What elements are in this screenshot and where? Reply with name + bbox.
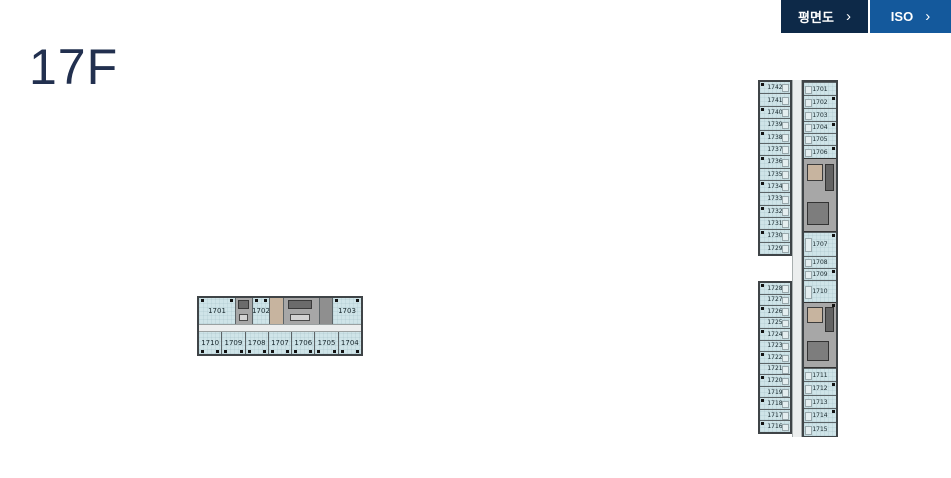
unit-1712[interactable]: 1712 bbox=[804, 381, 836, 395]
unit-label: 1708 bbox=[804, 257, 836, 268]
unit-label: 1739 bbox=[760, 119, 790, 130]
core-area bbox=[804, 302, 836, 368]
unit-label: 1728 bbox=[760, 283, 790, 294]
core-detail bbox=[288, 300, 313, 309]
unit-1718[interactable]: 1718 bbox=[760, 397, 790, 409]
unit-1735[interactable]: 1735 bbox=[760, 168, 790, 180]
unit-1740[interactable]: 1740 bbox=[760, 106, 790, 118]
core-detail bbox=[807, 307, 824, 322]
unit-label: 1730 bbox=[760, 230, 790, 241]
unit-1702[interactable]: 1702 bbox=[804, 95, 836, 108]
chevron-right-icon: › bbox=[925, 9, 930, 24]
core-detail bbox=[825, 164, 834, 191]
core-detail bbox=[807, 164, 824, 181]
unit-1714[interactable]: 1714 bbox=[804, 408, 836, 422]
unit-1724[interactable]: 1724 bbox=[760, 328, 790, 340]
unit-label: 1711 bbox=[804, 369, 836, 381]
core-detail bbox=[807, 202, 829, 225]
unit-label: 1724 bbox=[760, 329, 790, 340]
unit-1707[interactable]: 1707 bbox=[804, 232, 836, 256]
unit-label: 1723 bbox=[760, 341, 790, 352]
unit-1731[interactable]: 1731 bbox=[760, 217, 790, 229]
unit-1733[interactable]: 1733 bbox=[760, 192, 790, 204]
unit-label: 1710 bbox=[199, 332, 221, 354]
plan-top-row: 170117021703 bbox=[199, 298, 361, 324]
core-detail bbox=[239, 314, 248, 322]
plan-left-column: 1742174117401739173817371736173517341733… bbox=[758, 80, 792, 437]
unit-1726[interactable]: 1726 bbox=[760, 305, 790, 317]
unit-label: 1737 bbox=[760, 144, 790, 155]
unit-label: 1702 bbox=[804, 96, 836, 108]
unit-label: 1705 bbox=[315, 332, 337, 354]
unit-1706[interactable]: 1706 bbox=[291, 332, 314, 354]
unit-label: 1720 bbox=[760, 375, 790, 386]
unit-label: 1701 bbox=[804, 83, 836, 95]
unit-1721[interactable]: 1721 bbox=[760, 363, 790, 375]
unit-1708[interactable]: 1708 bbox=[804, 256, 836, 268]
floor-plan-horizontal: 1701170217031710170917081707170617051704 bbox=[197, 296, 363, 356]
view-toolbar: 평면도 › ISO › bbox=[781, 0, 951, 33]
unit-label: 1729 bbox=[760, 243, 790, 254]
left-units-lower: 1728172717261725172417231722172117201719… bbox=[758, 281, 792, 434]
unit-label: 1708 bbox=[246, 332, 268, 354]
unit-1739[interactable]: 1739 bbox=[760, 118, 790, 130]
unit-1706[interactable]: 1706 bbox=[804, 145, 836, 158]
unit-label: 1718 bbox=[760, 398, 790, 409]
unit-1728[interactable]: 1728 bbox=[760, 283, 790, 294]
unit-label: 1721 bbox=[760, 364, 790, 375]
unit-1701[interactable]: 1701 bbox=[199, 298, 235, 324]
unit-label: 1706 bbox=[804, 146, 836, 158]
left-units-upper: 1742174117401739173817371736173517341733… bbox=[758, 80, 792, 256]
plan-view-label: 평면도 bbox=[798, 7, 834, 26]
corridor-gap bbox=[758, 256, 792, 281]
unit-1720[interactable]: 1720 bbox=[760, 374, 790, 386]
unit-1736[interactable]: 1736 bbox=[760, 155, 790, 167]
unit-1708[interactable]: 1708 bbox=[245, 332, 268, 354]
elevator-lobby bbox=[269, 298, 283, 324]
unit-1704[interactable]: 1704 bbox=[338, 332, 361, 354]
unit-label: 1705 bbox=[804, 134, 836, 145]
unit-1703[interactable]: 1703 bbox=[804, 108, 836, 121]
unit-label: 1740 bbox=[760, 107, 790, 118]
unit-label: 1734 bbox=[760, 181, 790, 192]
unit-1704[interactable]: 1704 bbox=[804, 121, 836, 133]
unit-label: 1733 bbox=[760, 193, 790, 204]
corridor bbox=[199, 324, 361, 332]
unit-label: 1736 bbox=[760, 156, 790, 167]
chevron-right-icon: › bbox=[846, 9, 851, 24]
unit-label: 1706 bbox=[292, 332, 314, 354]
unit-1703[interactable]: 1703 bbox=[332, 298, 361, 324]
unit-1716[interactable]: 1716 bbox=[760, 420, 790, 432]
corridor bbox=[792, 80, 802, 437]
iso-view-button[interactable]: ISO › bbox=[870, 0, 951, 33]
unit-1709[interactable]: 1709 bbox=[804, 268, 836, 280]
unit-1701[interactable]: 1701 bbox=[804, 82, 836, 95]
plan-right-column: 1701170217031704170517061707170817091710… bbox=[802, 80, 838, 437]
unit-label: 1722 bbox=[760, 352, 790, 363]
unit-label: 1704 bbox=[804, 122, 836, 133]
unit-label: 1714 bbox=[804, 409, 836, 422]
unit-label: 1732 bbox=[760, 206, 790, 217]
unit-label: 1709 bbox=[222, 332, 244, 354]
unit-1729[interactable]: 1729 bbox=[760, 242, 790, 254]
iso-view-label: ISO bbox=[891, 9, 913, 24]
unit-label: 1717 bbox=[760, 410, 790, 421]
unit-label: 1713 bbox=[804, 396, 836, 408]
unit-1734[interactable]: 1734 bbox=[760, 180, 790, 192]
unit-label: 1731 bbox=[760, 218, 790, 229]
unit-label: 1707 bbox=[804, 233, 836, 256]
unit-label: 1710 bbox=[804, 281, 836, 302]
unit-1715[interactable]: 1715 bbox=[804, 422, 836, 436]
unit-label: 1719 bbox=[760, 387, 790, 398]
unit-1719[interactable]: 1719 bbox=[760, 386, 790, 398]
unit-1711[interactable]: 1711 bbox=[804, 368, 836, 381]
unit-label: 1715 bbox=[804, 423, 836, 436]
unit-label: 1735 bbox=[760, 169, 790, 180]
unit-1727[interactable]: 1727 bbox=[760, 294, 790, 306]
unit-label: 1727 bbox=[760, 295, 790, 306]
unit-label: 1738 bbox=[760, 131, 790, 142]
core-detail bbox=[825, 307, 834, 331]
core-area bbox=[319, 298, 332, 324]
unit-1737[interactable]: 1737 bbox=[760, 143, 790, 155]
unit-label: 1703 bbox=[333, 298, 361, 324]
core-area bbox=[235, 298, 252, 324]
unit-label: 1707 bbox=[269, 332, 291, 354]
core-area bbox=[283, 298, 319, 324]
unit-label: 1712 bbox=[804, 382, 836, 395]
unit-label: 1742 bbox=[760, 82, 790, 93]
unit-label: 1716 bbox=[760, 421, 790, 432]
unit-1707[interactable]: 1707 bbox=[268, 332, 291, 354]
plan-view-button[interactable]: 평면도 › bbox=[781, 0, 868, 33]
unit-label: 1704 bbox=[339, 332, 361, 354]
unit-1710[interactable]: 1710 bbox=[804, 280, 836, 302]
unit-1717[interactable]: 1717 bbox=[760, 409, 790, 421]
core-detail bbox=[290, 314, 309, 322]
unit-label: 1726 bbox=[760, 306, 790, 317]
core-area bbox=[804, 158, 836, 232]
unit-label: 1703 bbox=[804, 109, 836, 121]
unit-1738[interactable]: 1738 bbox=[760, 130, 790, 142]
unit-1705[interactable]: 1705 bbox=[804, 133, 836, 145]
core-detail bbox=[807, 341, 829, 361]
floor-plan-vertical: 1742174117401739173817371736173517341733… bbox=[758, 80, 838, 437]
unit-1709[interactable]: 1709 bbox=[221, 332, 244, 354]
unit-1732[interactable]: 1732 bbox=[760, 205, 790, 217]
unit-1730[interactable]: 1730 bbox=[760, 229, 790, 241]
core-detail bbox=[238, 300, 249, 309]
unit-label: 1709 bbox=[804, 269, 836, 280]
unit-1722[interactable]: 1722 bbox=[760, 351, 790, 363]
unit-1705[interactable]: 1705 bbox=[314, 332, 337, 354]
unit-1710[interactable]: 1710 bbox=[199, 332, 221, 354]
unit-label: 1702 bbox=[253, 298, 269, 324]
plan-bottom-row: 1710170917081707170617051704 bbox=[199, 332, 361, 354]
unit-1723[interactable]: 1723 bbox=[760, 340, 790, 352]
unit-1713[interactable]: 1713 bbox=[804, 395, 836, 408]
floor-title: 17F bbox=[29, 38, 118, 96]
unit-1741[interactable]: 1741 bbox=[760, 93, 790, 105]
unit-1702[interactable]: 1702 bbox=[252, 298, 269, 324]
unit-label: 1701 bbox=[199, 298, 235, 324]
unit-label: 1725 bbox=[760, 318, 790, 329]
unit-label: 1741 bbox=[760, 94, 790, 105]
unit-1725[interactable]: 1725 bbox=[760, 317, 790, 329]
unit-1742[interactable]: 1742 bbox=[760, 82, 790, 93]
